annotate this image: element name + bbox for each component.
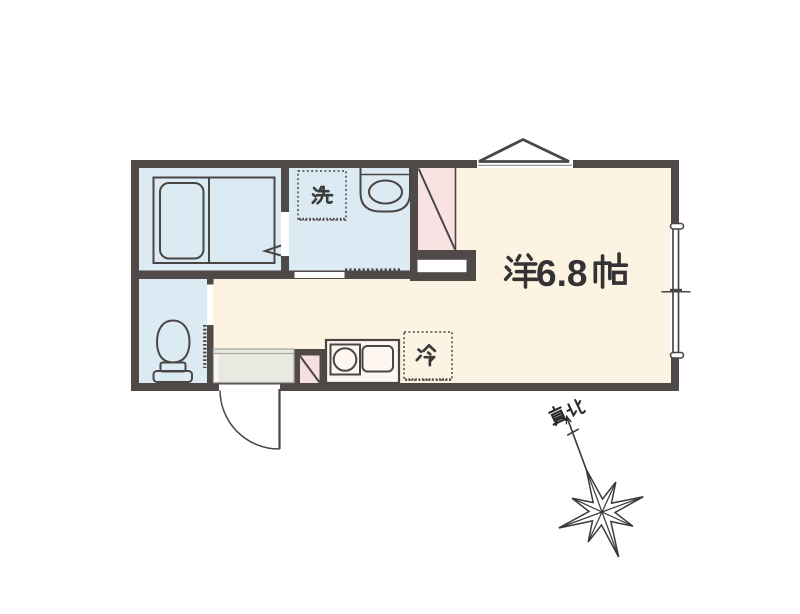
svg-text:6.8: 6.8 [536, 253, 587, 294]
